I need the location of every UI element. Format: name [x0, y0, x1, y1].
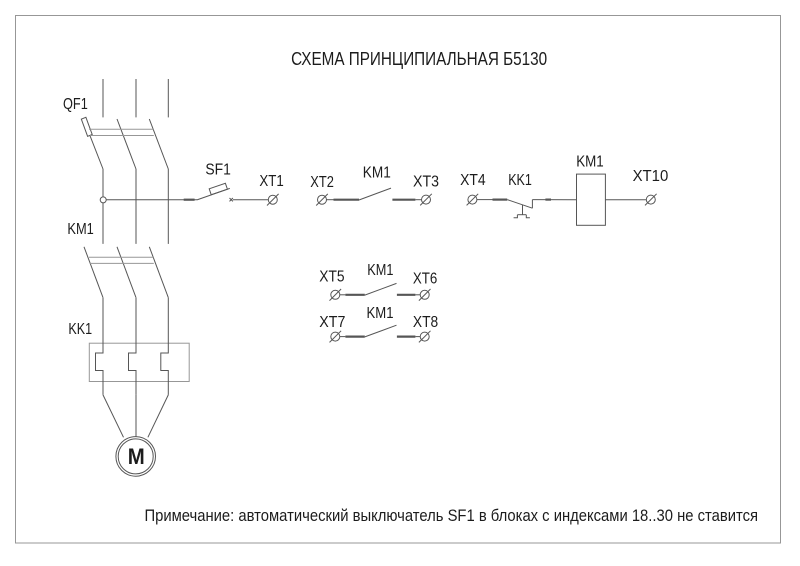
- svg-text:XT8: XT8: [413, 314, 438, 331]
- svg-text:KM1: KM1: [367, 305, 394, 322]
- svg-text:XT10: XT10: [633, 168, 669, 185]
- svg-text:QF1: QF1: [63, 96, 88, 113]
- svg-text:KM1: KM1: [67, 221, 93, 238]
- svg-text:M: M: [128, 444, 145, 469]
- svg-text:XT4: XT4: [460, 172, 486, 189]
- svg-text:KM1: KM1: [363, 164, 391, 181]
- svg-text:XT1: XT1: [259, 173, 283, 190]
- svg-text:SF1: SF1: [205, 161, 231, 178]
- svg-text:KK1: KK1: [508, 172, 532, 189]
- svg-text:XT2: XT2: [310, 174, 334, 191]
- svg-text:XT3: XT3: [413, 173, 439, 190]
- svg-text:KK1: KK1: [68, 321, 92, 338]
- svg-text:KM1: KM1: [576, 154, 604, 171]
- svg-text:XT6: XT6: [413, 270, 437, 287]
- svg-text:Примечание: автоматический вык: Примечание: автоматический выключатель S…: [145, 506, 759, 525]
- svg-text:KM1: KM1: [367, 262, 393, 279]
- svg-text:XT5: XT5: [319, 269, 344, 286]
- svg-text:СХЕМА ПРИНЦИПИАЛЬНАЯ Б5130: СХЕМА ПРИНЦИПИАЛЬНАЯ Б5130: [291, 49, 547, 69]
- svg-text:XT7: XT7: [319, 314, 345, 331]
